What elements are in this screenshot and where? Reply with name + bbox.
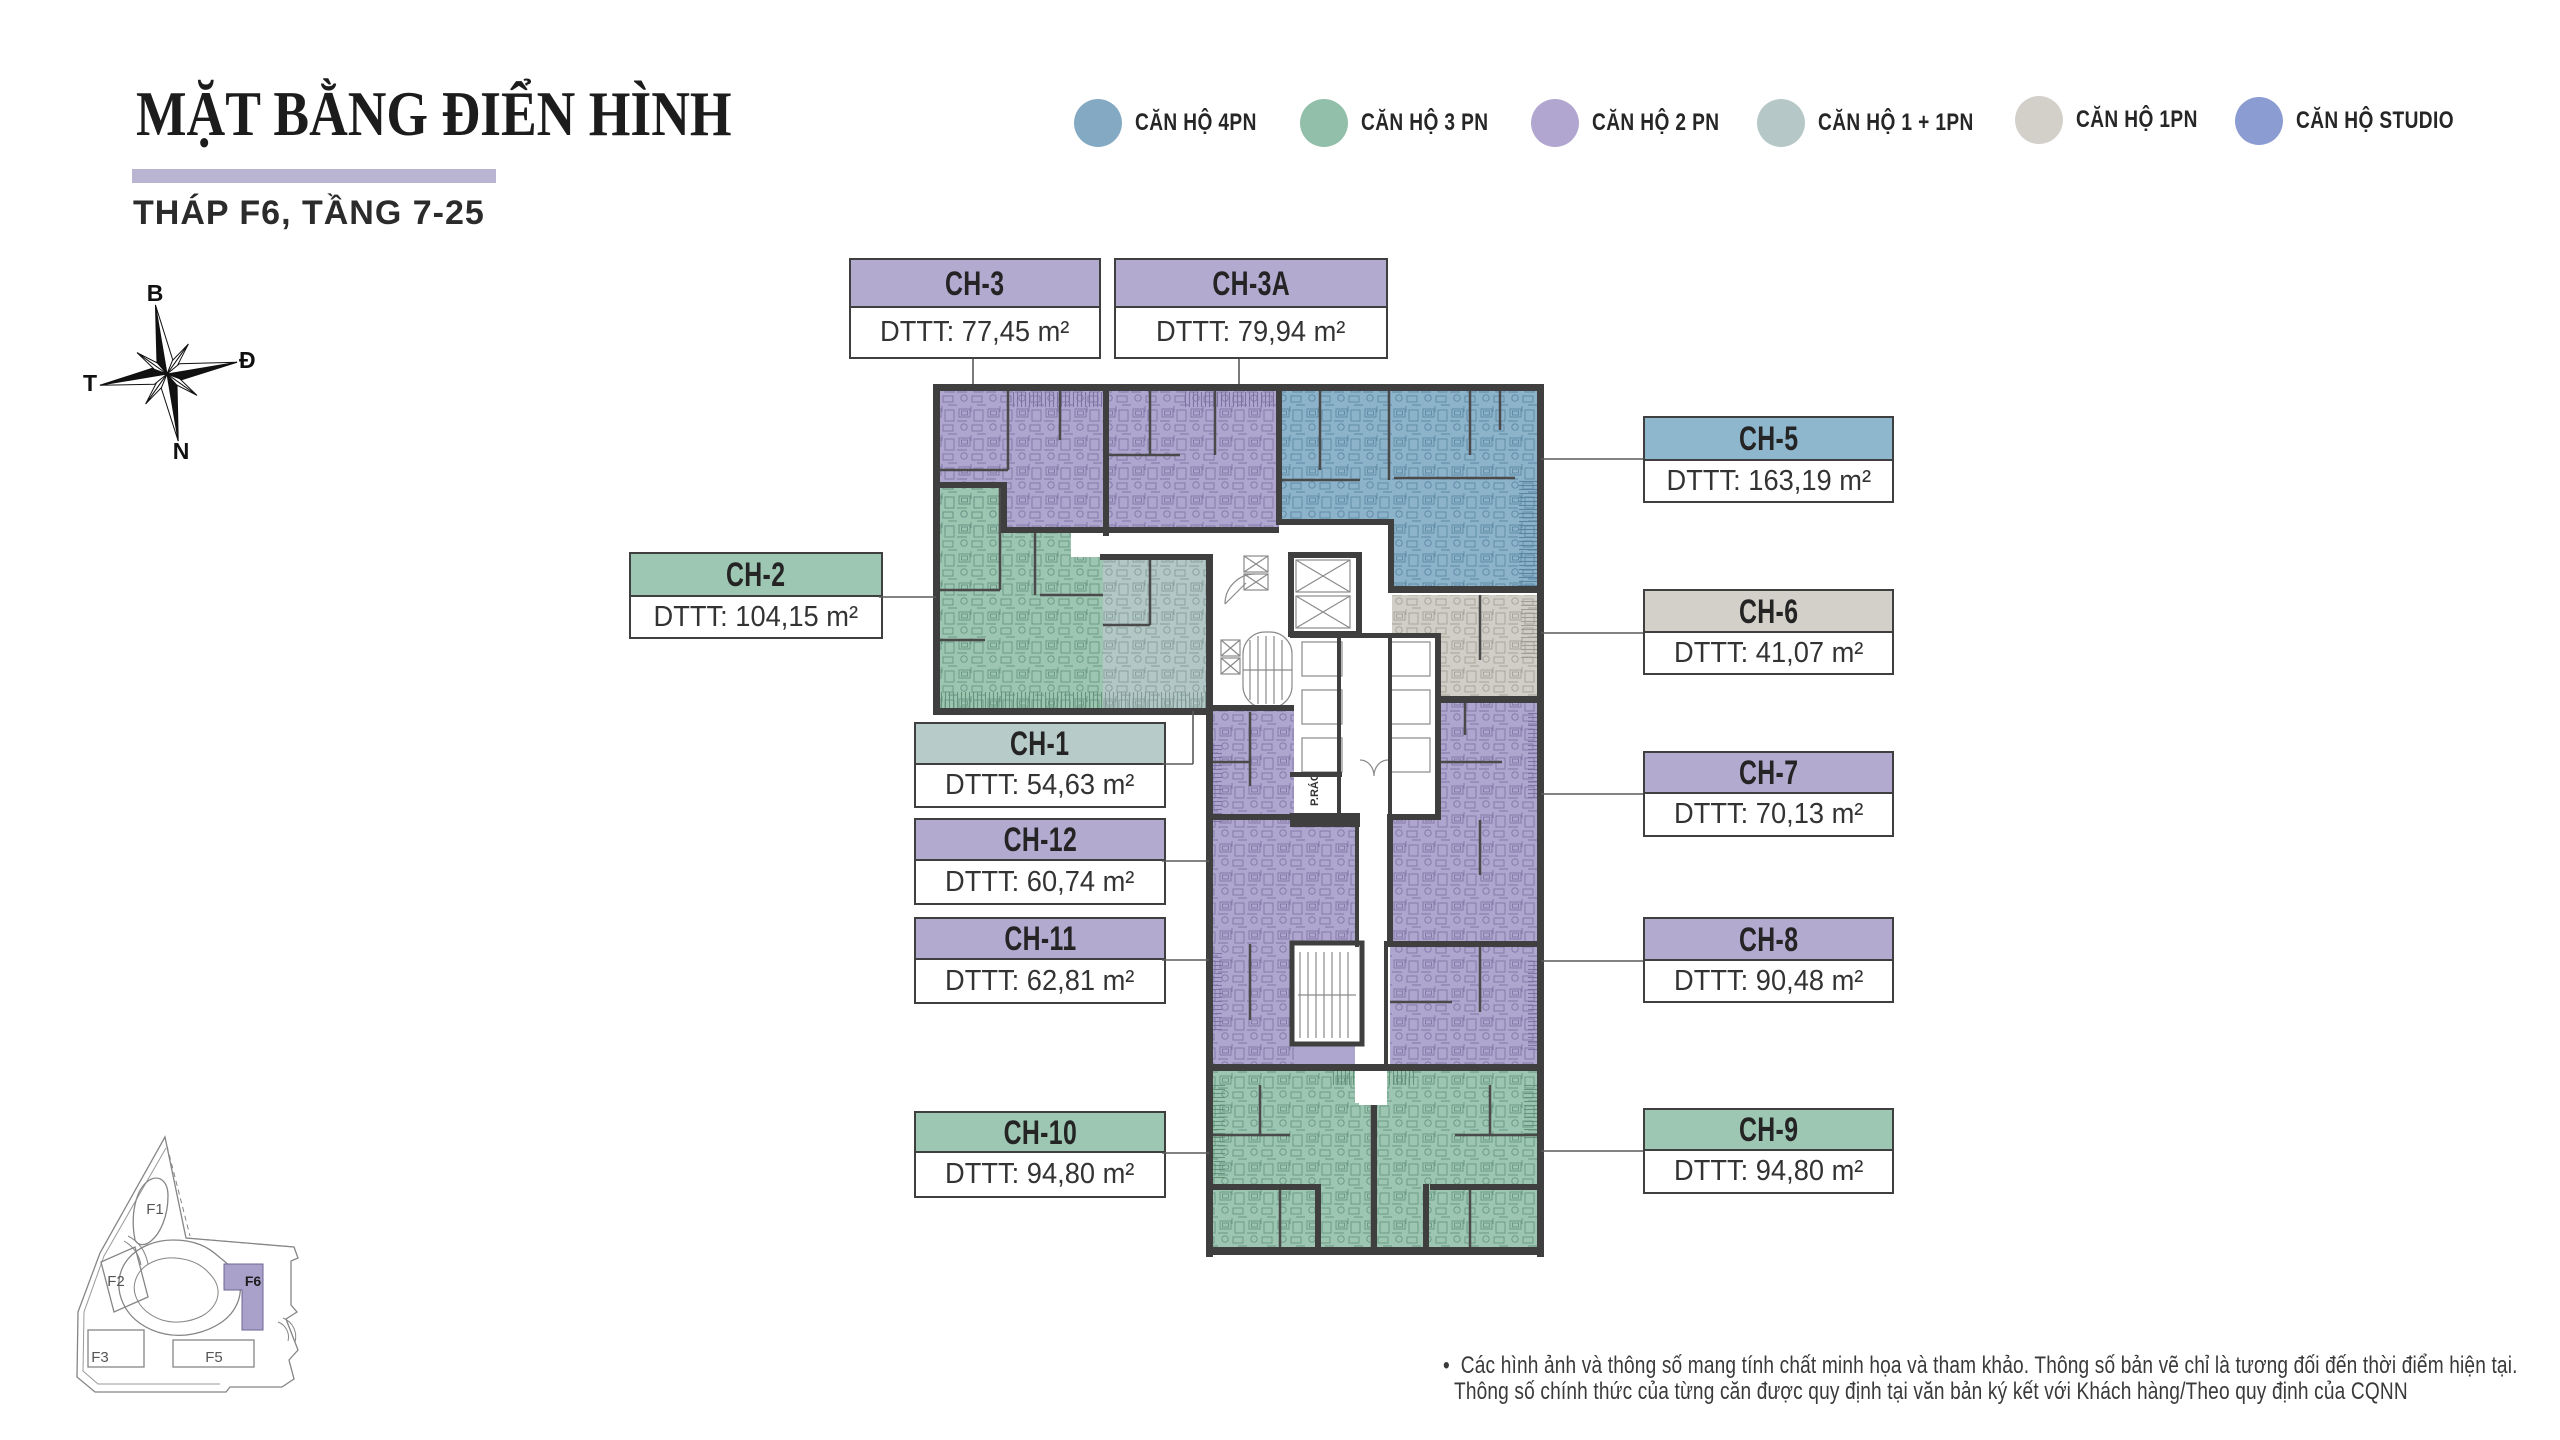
- svg-text:F1: F1: [146, 1201, 164, 1218]
- svg-text:B: B: [147, 280, 164, 306]
- svg-text:F6: F6: [245, 1273, 262, 1289]
- svg-text:T: T: [83, 370, 97, 396]
- svg-text:F2: F2: [107, 1273, 125, 1290]
- svg-text:P.RÁC: P.RÁC: [1308, 773, 1321, 806]
- svg-text:N: N: [173, 438, 190, 464]
- svg-text:Đ: Đ: [239, 347, 256, 373]
- svg-text:F5: F5: [205, 1349, 223, 1366]
- svg-text:F3: F3: [91, 1349, 109, 1366]
